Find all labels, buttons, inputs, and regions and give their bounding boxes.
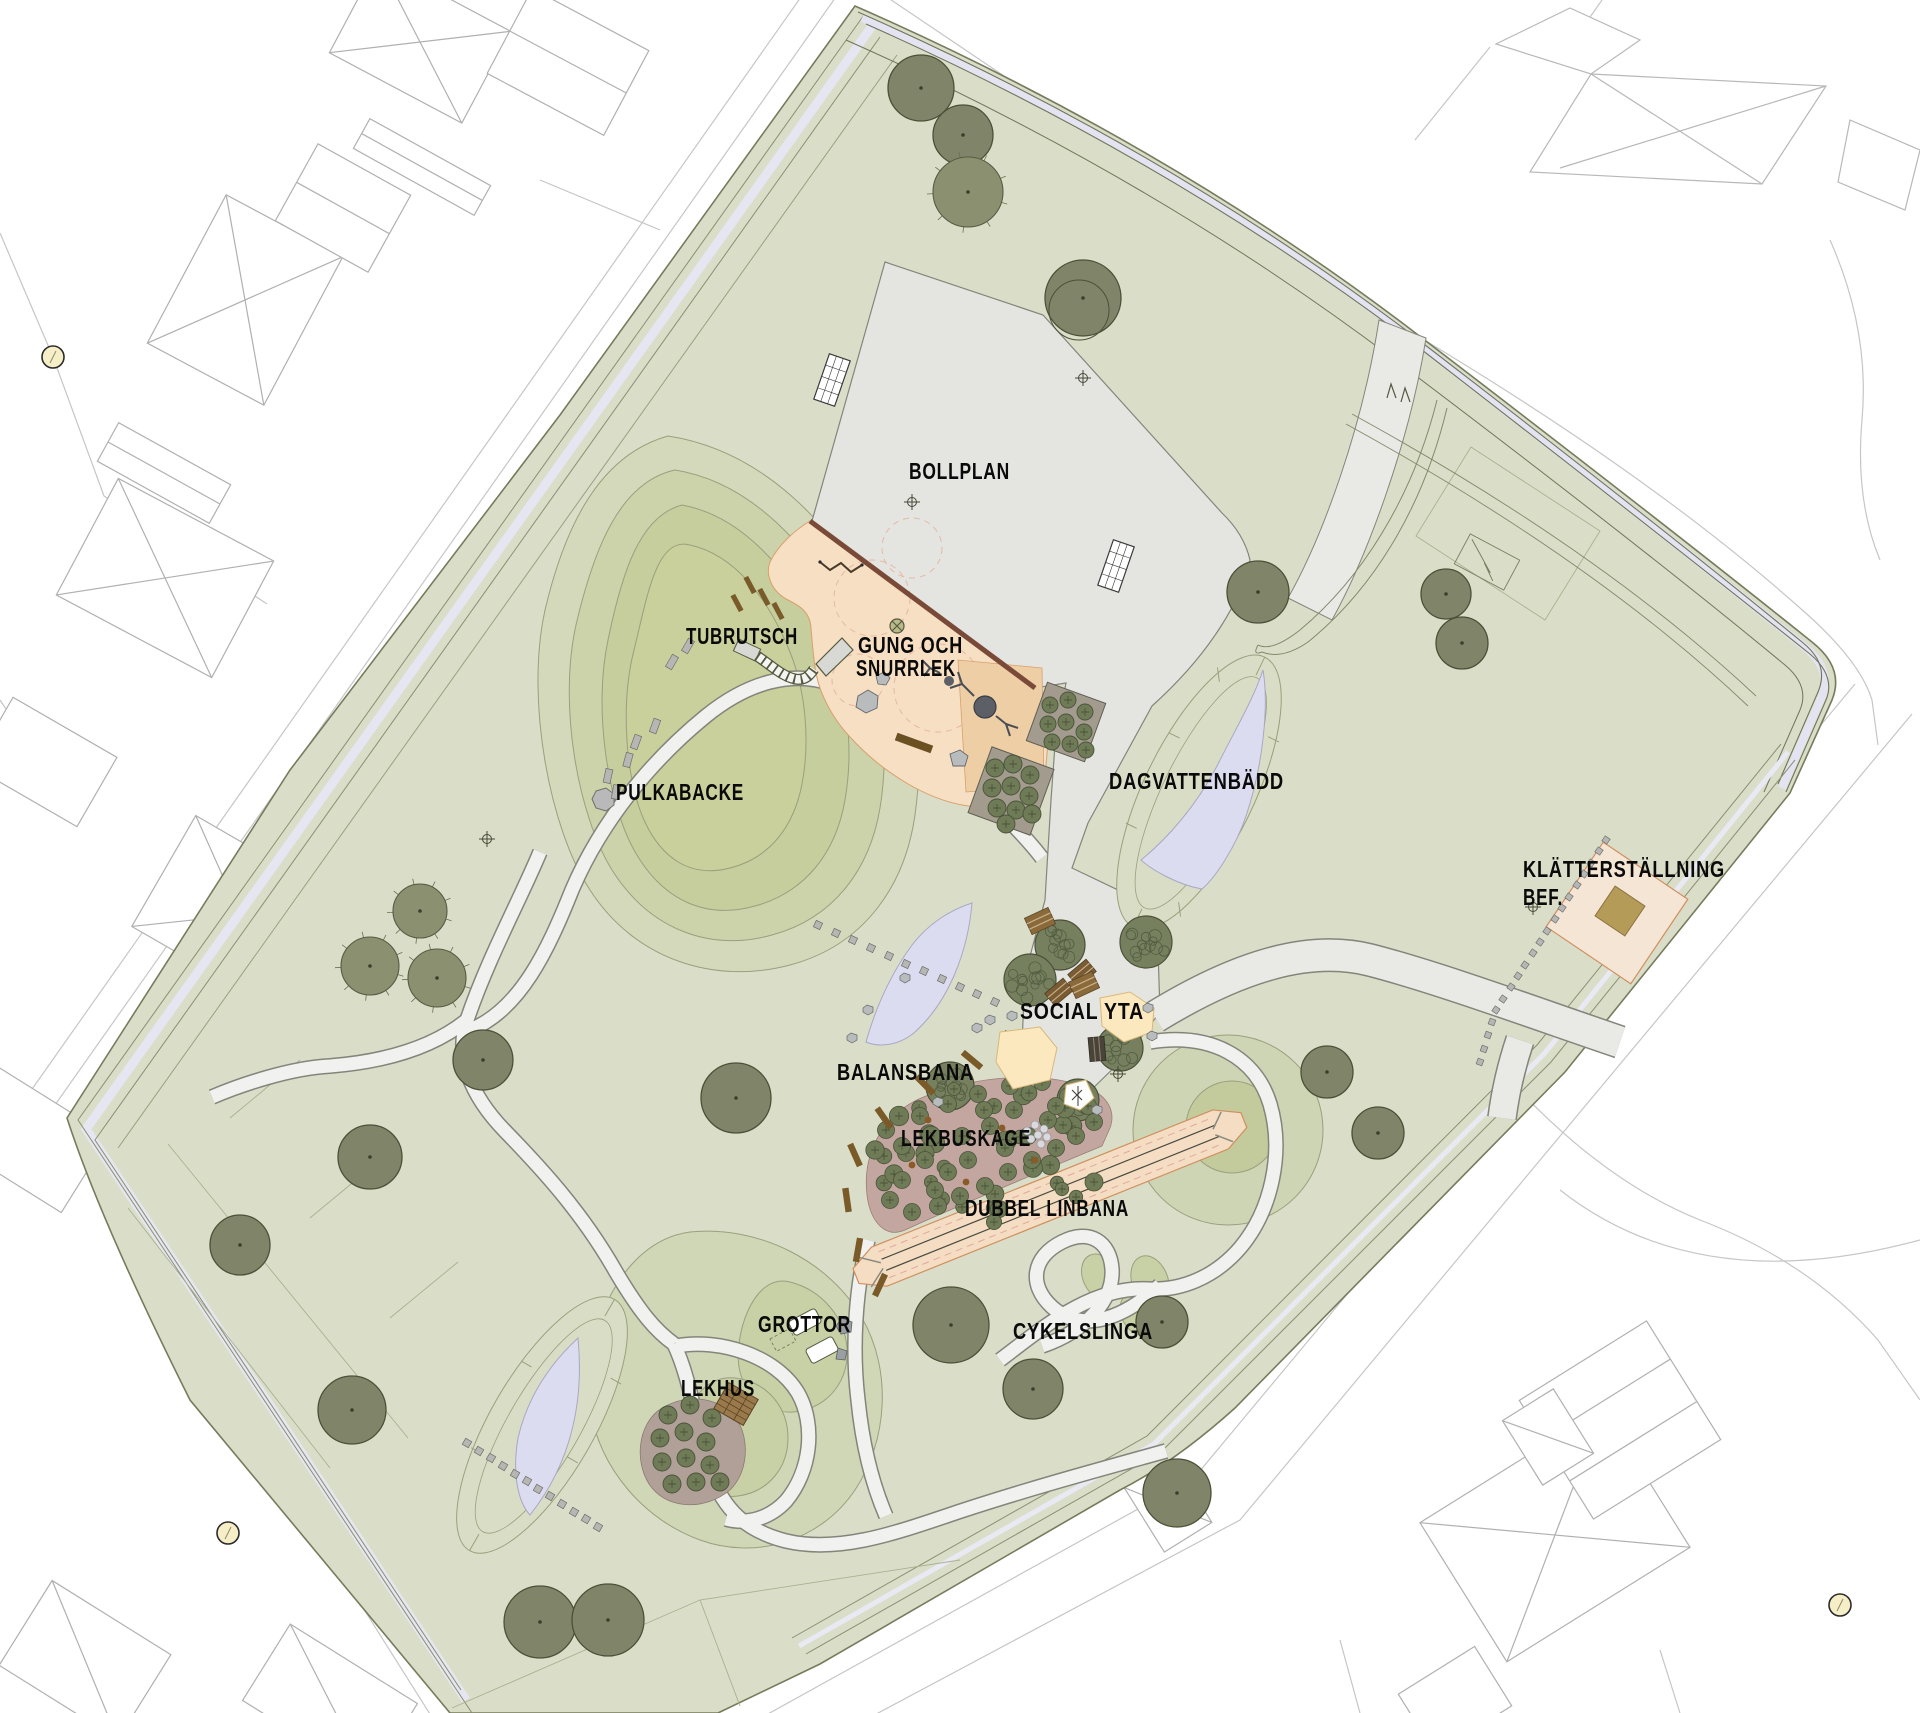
svg-text:CYKELSLINGA: CYKELSLINGA (1013, 1318, 1153, 1344)
svg-text:LEKHUS: LEKHUS (681, 1375, 755, 1401)
svg-text:BEF.: BEF. (1523, 884, 1563, 910)
svg-text:BOLLPLAN: BOLLPLAN (909, 458, 1010, 484)
svg-text:DUBBEL LINBANA: DUBBEL LINBANA (965, 1195, 1129, 1221)
svg-text:LEKBUSKAGE: LEKBUSKAGE (901, 1125, 1031, 1151)
svg-text:KLÄTTERSTÄLLNING: KLÄTTERSTÄLLNING (1523, 856, 1725, 882)
svg-text:TUBRUTSCH: TUBRUTSCH (686, 623, 798, 649)
svg-text:PULKABACKE: PULKABACKE (616, 779, 744, 805)
svg-text:GROTTOR: GROTTOR (758, 1311, 851, 1337)
svg-text:SNURRLEK: SNURRLEK (856, 655, 956, 681)
svg-text:BALANSBANA: BALANSBANA (837, 1059, 974, 1085)
svg-text:SOCIAL YTA: SOCIAL YTA (1020, 998, 1144, 1024)
svg-text:DAGVATTENBÄDD: DAGVATTENBÄDD (1109, 768, 1284, 794)
